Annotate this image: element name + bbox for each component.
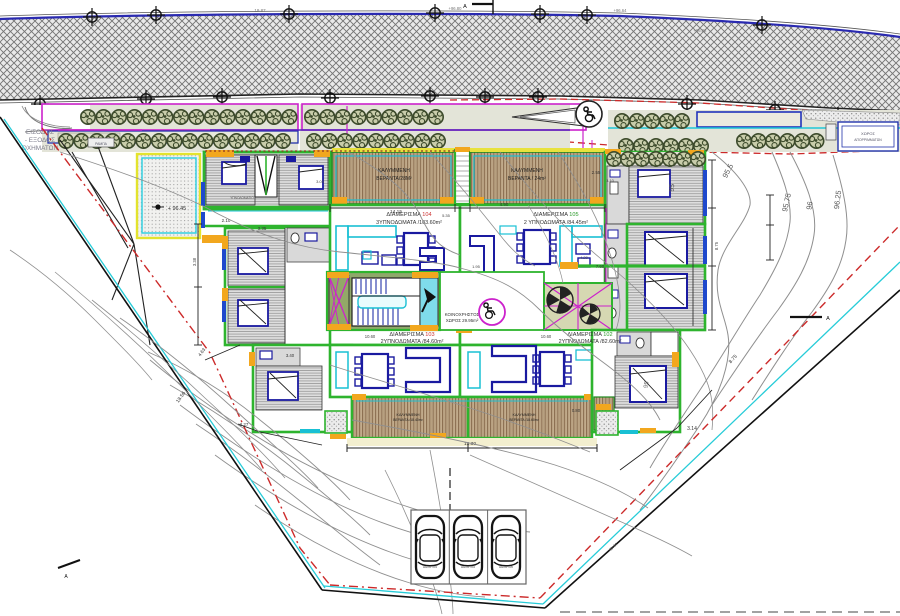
svg-text:ΡΑΜΠΑ: ΡΑΜΠΑ: [95, 142, 108, 146]
svg-text:95: 95: [669, 184, 677, 192]
svg-text:2.10: 2.10: [222, 218, 231, 223]
svg-text:A: A: [826, 316, 830, 322]
svg-text:8.75: 8.75: [714, 241, 719, 250]
svg-text:ΚΑΛΥΜΜΕΝΗ: ΚΑΛΥΜΜΕΝΗ: [511, 168, 543, 174]
svg-text:ΧΩΡΟΣ 29.95m²: ΧΩΡΟΣ 29.95m²: [446, 318, 479, 323]
svg-text:4.90: 4.90: [500, 202, 509, 207]
svg-text:1.95: 1.95: [472, 264, 481, 269]
svg-text:2.55: 2.55: [592, 170, 601, 175]
svg-text:ΘΕΣΗ 104: ΘΕΣΗ 104: [461, 565, 476, 569]
svg-text:ΒΕΡΑΝΤΑ /18.40m²: ΒΕΡΑΝΤΑ /18.40m²: [393, 418, 423, 422]
svg-text:+96.64: +96.64: [614, 8, 628, 13]
svg-text:+96.80: +96.80: [449, 6, 463, 11]
svg-text:ΟΧΗΜΑΤΩΝ: ΟΧΗΜΑΤΩΝ: [22, 145, 59, 152]
svg-text:ΚΑΛΥΜΜΕΝΗ: ΚΑΛΥΜΜΕΝΗ: [513, 413, 536, 417]
svg-text:3.40: 3.40: [286, 353, 295, 358]
svg-text:3.38: 3.38: [192, 257, 197, 266]
svg-text:19.87: 19.87: [254, 8, 266, 13]
svg-text:4.20: 4.20: [580, 255, 589, 260]
svg-text:3.03: 3.03: [316, 179, 325, 184]
svg-text:ΒΕΡΑΝΤΑ / 24m²: ΒΕΡΑΝΤΑ / 24m²: [508, 176, 546, 182]
svg-text:3.14: 3.14: [687, 426, 697, 432]
svg-text:10.60: 10.60: [365, 334, 376, 339]
svg-text:ΧΩΡΟΣ: ΧΩΡΟΣ: [861, 131, 875, 136]
svg-text:14.15: 14.15: [390, 209, 402, 215]
svg-text:7.60: 7.60: [596, 264, 605, 269]
svg-text:96: 96: [804, 201, 814, 211]
svg-text:ΒΕΡΑΝΤΑ /18.60m²: ΒΕΡΑΝΤΑ /18.60m²: [509, 418, 539, 422]
svg-text:ΘΕΣΗ 105: ΘΕΣΗ 105: [499, 565, 514, 569]
svg-text:3.10: 3.10: [606, 178, 615, 183]
svg-text:A: A: [463, 4, 467, 10]
svg-text:+96.02: +96.02: [694, 28, 708, 33]
svg-text:ΑΠΟΡΡΙΜΜΑΤΩΝ: ΑΠΟΡΡΙΜΜΑΤΩΝ: [854, 138, 882, 142]
svg-text:5.35: 5.35: [442, 213, 451, 218]
svg-text:ΚΑΛΥΜΜΕΝΗ: ΚΑΛΥΜΜΕΝΗ: [397, 413, 420, 417]
svg-text:ΒΕΡΑΝΤΑ/28Μ²: ΒΕΡΑΝΤΑ/28Μ²: [376, 176, 412, 182]
svg-text:ΔΙΑΜΕΡΙΣΜΑ 102: ΔΙΑΜΕΡΙΣΜΑ 102: [567, 332, 612, 338]
svg-text:ΕΙΣΟΔΟΣ: ΕΙΣΟΔΟΣ: [26, 129, 54, 136]
svg-text:3.35: 3.35: [258, 226, 267, 231]
svg-text:3ΥΠΝΟΔΩΜΑΤΑ /103.60m²: 3ΥΠΝΟΔΩΜΑΤΑ /103.60m²: [376, 220, 442, 226]
svg-text:- ΕΞΟΔΟΣ: - ΕΞΟΔΟΣ: [25, 137, 55, 144]
svg-text:ΔΙΑΜΕΡΙΣΜΑ 103: ΔΙΑΜΕΡΙΣΜΑ 103: [389, 332, 434, 338]
svg-text:2ΥΠΝΟΔΩΜΑΤΑ /84.60m²: 2ΥΠΝΟΔΩΜΑΤΑ /84.60m²: [381, 339, 444, 345]
svg-text:ΚΑΛΥΜΜΕΝΗ: ΚΑΛΥΜΜΕΝΗ: [378, 168, 410, 174]
svg-text:2ΥΠΝΟΔΩΜΑΤΑ /82.60m²: 2ΥΠΝΟΔΩΜΑΤΑ /82.60m²: [559, 339, 622, 345]
svg-text:ΚΟΙΝΟΧΡΗΣΤΟΣ: ΚΟΙΝΟΧΡΗΣΤΟΣ: [445, 312, 480, 317]
svg-text:ΘΕΣΗ 103: ΘΕΣΗ 103: [423, 565, 438, 569]
svg-text:+ 96.45: + 96.45: [168, 206, 187, 212]
svg-text:2 ΥΠΝΟΔΩΜΑΤΑ /84.45m²: 2 ΥΠΝΟΔΩΜΑΤΑ /84.45m²: [524, 220, 588, 226]
svg-text:10.60: 10.60: [541, 334, 552, 339]
svg-text:ΥΠΝΟΔΩΜΑΤΙΟ: ΥΠΝΟΔΩΜΑΤΙΟ: [230, 196, 254, 200]
svg-text:0.80: 0.80: [572, 408, 581, 413]
